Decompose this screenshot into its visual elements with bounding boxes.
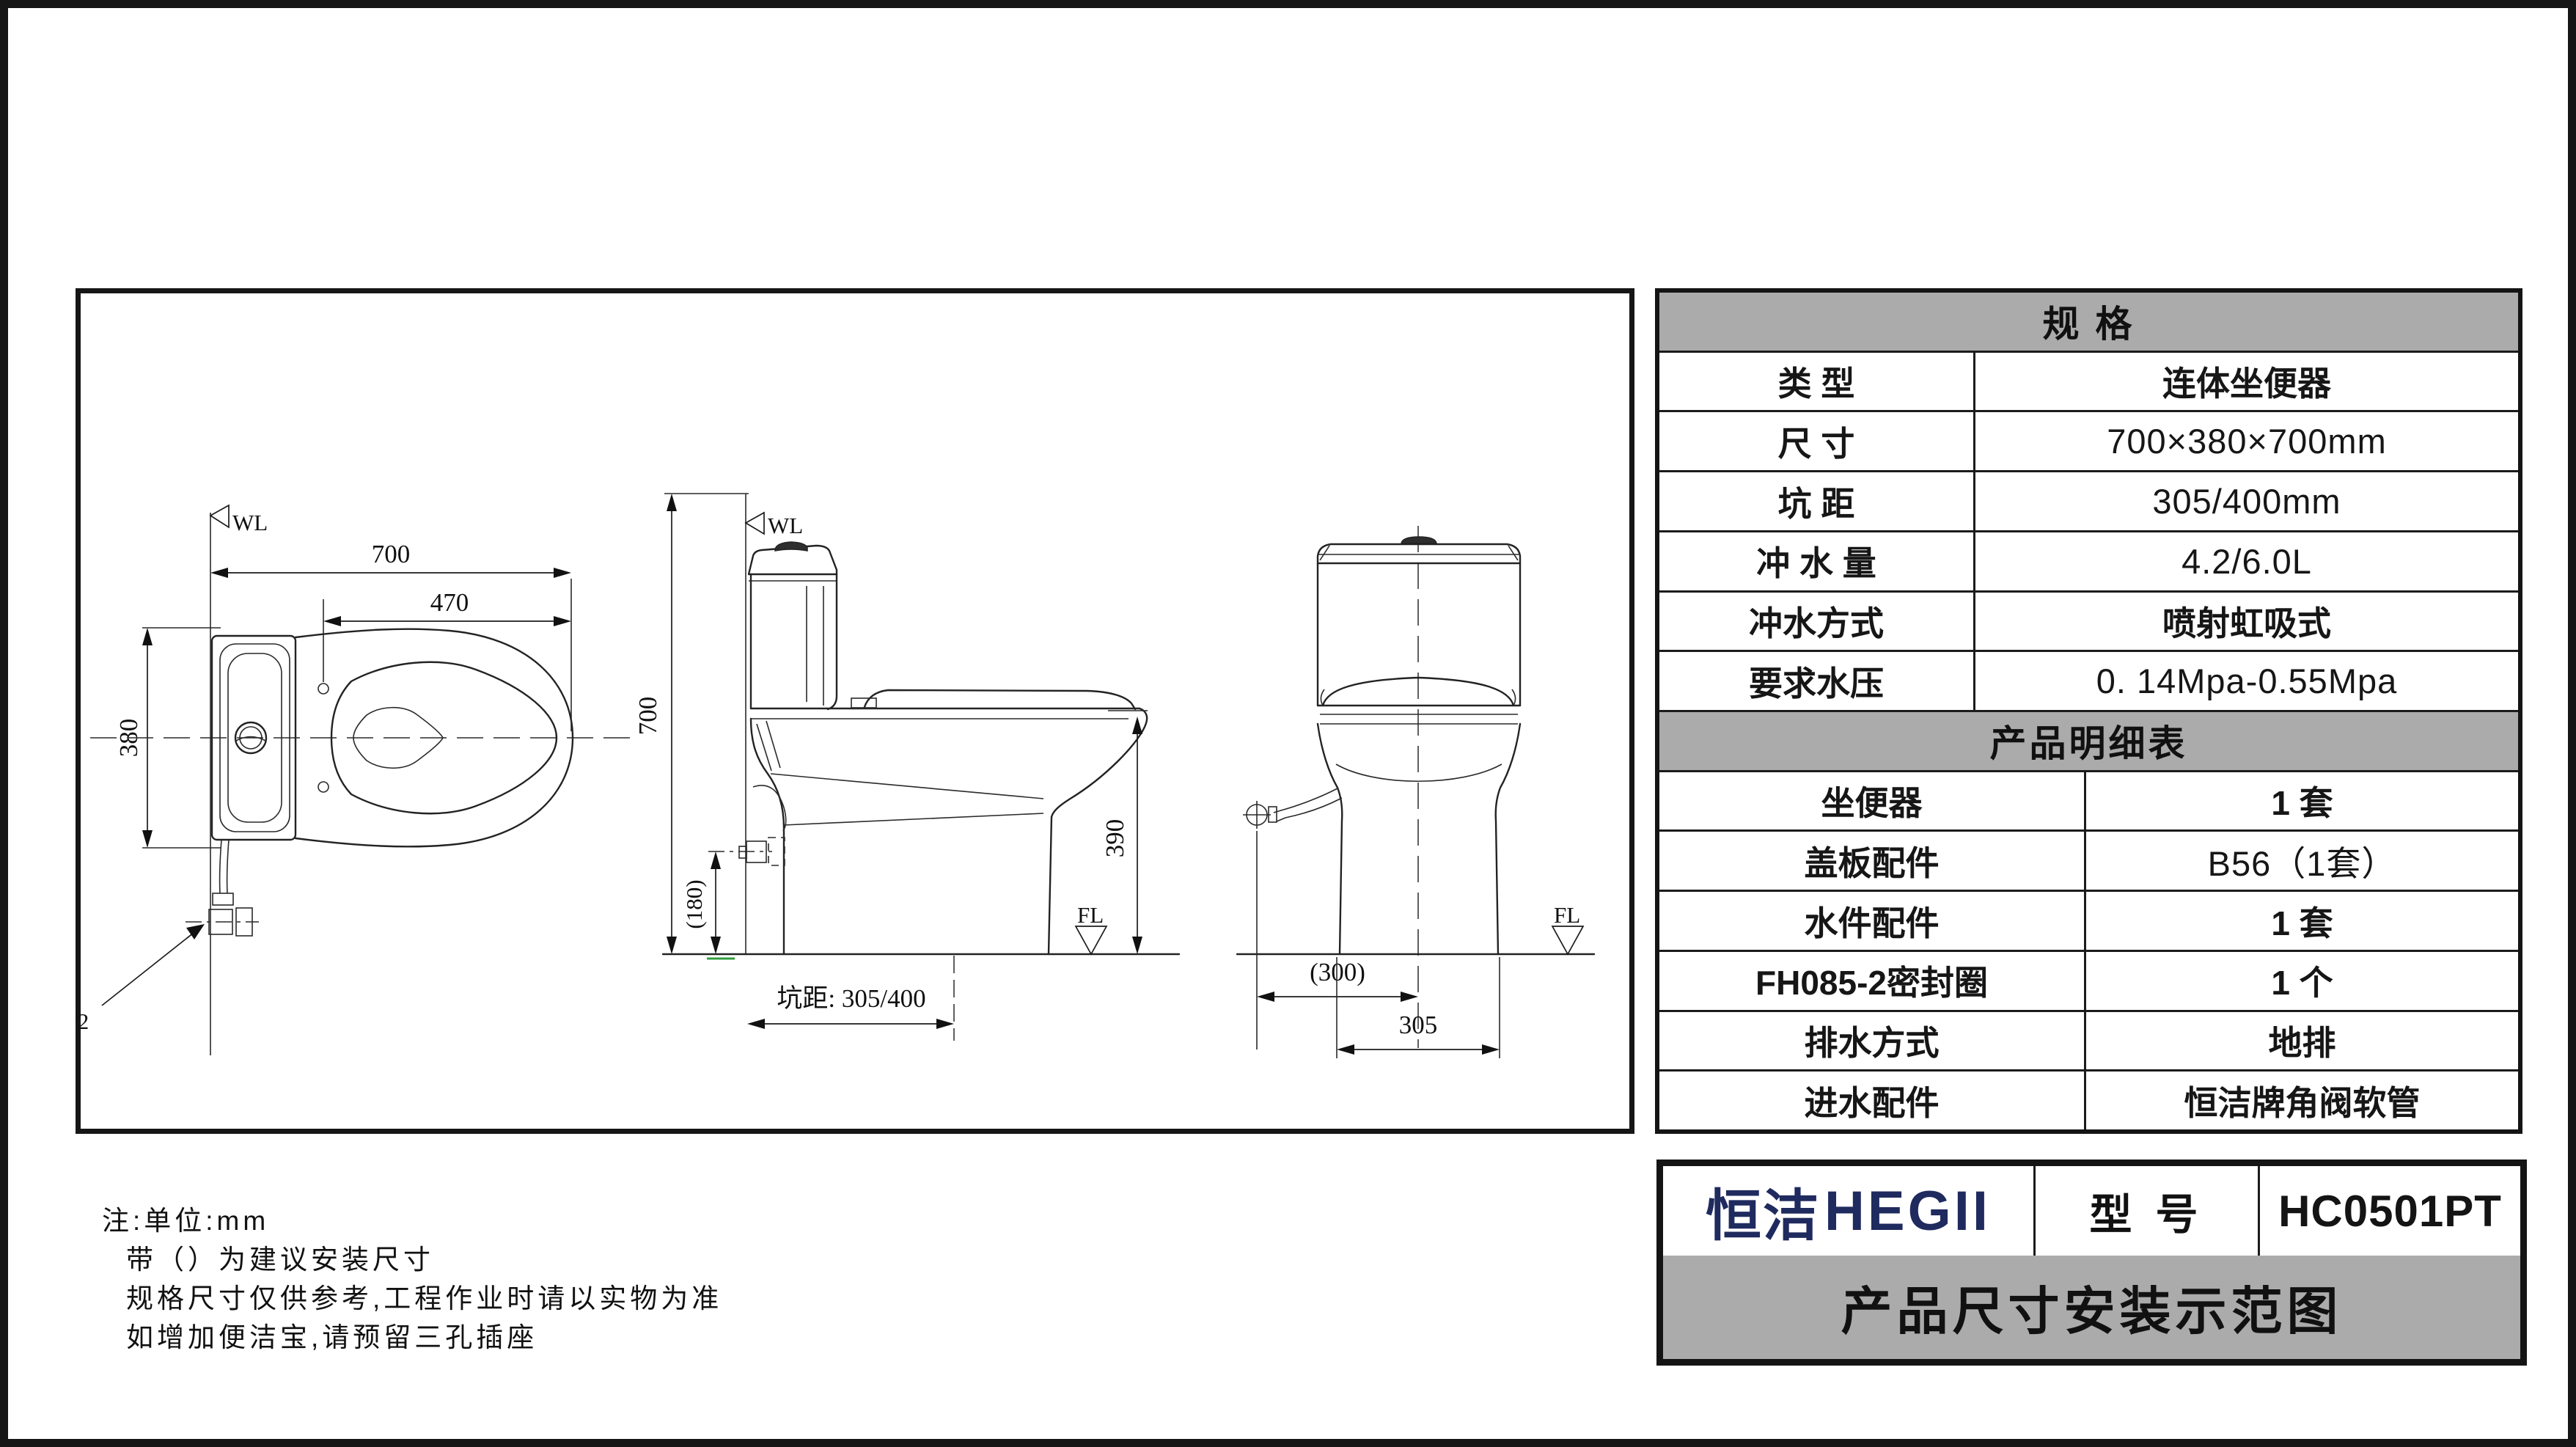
brand-logo-en: HEGII (1824, 1179, 1991, 1243)
product-table-header: 产品明细表 (1659, 710, 2518, 770)
product-label: 进水配件 (1659, 1071, 2086, 1129)
wl-label: WL (768, 513, 803, 538)
spec-sheet-page: WL 700 470 380 (0, 0, 2576, 1447)
product-value: 地排 (2086, 1012, 2518, 1070)
spec-value: 连体坐便器 (1975, 353, 2518, 411)
product-label: 排水方式 (1659, 1012, 2086, 1070)
model-label: 型 号 (2036, 1166, 2260, 1256)
brand-logo-cn: 恒洁 (1706, 1171, 1820, 1251)
spec-label: 坑 距 (1659, 472, 1975, 530)
product-value: 1 个 (2086, 952, 2518, 1010)
spec-value: 4.2/6.0L (1975, 532, 2518, 590)
product-value: 恒洁牌角阀软管 (2086, 1071, 2518, 1129)
table-row: 坑 距 305/400mm (1659, 470, 2518, 530)
product-value: 1 套 (2086, 892, 2518, 950)
fl-label: FL (1077, 902, 1104, 928)
title-block: 恒洁 HEGII 型 号 HC0501PT 产品尺寸安装示范图 (1656, 1160, 2527, 1366)
table-row: 进水配件 恒洁牌角阀软管 (1659, 1069, 2518, 1129)
note-line: 如增加便洁宝,请预留三孔插座 (126, 1319, 1129, 1357)
fl-marker-icon (1076, 926, 1107, 954)
spec-value: 0. 14Mpa-0.55Mpa (1975, 652, 2518, 710)
notes-block: 注:单位:mm 带（）为建议安装尺寸 规格尺寸仅供参考,工程作业时请以实物为准 … (102, 1202, 1129, 1358)
model-value: HC0501PT (2260, 1166, 2520, 1256)
spec-label: 冲 水 量 (1659, 532, 1975, 590)
dim-300: (300) (1310, 958, 1365, 986)
table-row: 冲 水 量 4.2/6.0L (1659, 530, 2518, 590)
table-row: 盖板配件 B56（1套） (1659, 829, 2518, 890)
spec-value: 700×380×700mm (1975, 412, 2518, 470)
sheet-caption: 产品尺寸安装示范图 (1663, 1256, 2520, 1359)
spec-label: 要求水压 (1659, 652, 1975, 710)
table-row: 尺 寸 700×380×700mm (1659, 410, 2518, 470)
specification-table: 规 格 类 型 连体坐便器 尺 寸 700×380×700mm 坑 距 305/… (1655, 288, 2522, 1134)
fl-label: FL (1554, 902, 1580, 928)
product-label: 盖板配件 (1659, 832, 2086, 890)
wl-marker-icon (746, 513, 764, 534)
table-row: 坐便器 1 套 (1659, 770, 2518, 830)
spec-label: 冲水方式 (1659, 593, 1975, 651)
dim-180: (180) (681, 879, 707, 928)
table-row: 类 型 连体坐便器 (1659, 351, 2518, 411)
spec-table-header: 规 格 (1659, 293, 2518, 351)
side-view: 700 WL (634, 494, 1179, 1041)
product-label: 坐便器 (1659, 772, 2086, 830)
dim-700-side: 700 (634, 697, 662, 736)
spec-label: 尺 寸 (1659, 412, 1975, 470)
top-view: WL 700 470 380 (76, 505, 630, 1055)
spec-value: 305/400mm (1975, 472, 2518, 530)
table-row: 要求水压 0. 14Mpa-0.55Mpa (1659, 650, 2518, 710)
table-row: 排水方式 地排 (1659, 1010, 2518, 1070)
dim-305: 305 (1399, 1011, 1438, 1039)
inlet-thread-label: R1/2 (76, 1008, 89, 1034)
note-line: 规格尺寸仅供参考,工程作业时请以实物为准 (126, 1280, 1129, 1318)
pit-distance-label: 坑距: 305/400 (777, 984, 925, 1013)
note-line: 注:单位:mm (102, 1202, 1129, 1240)
technical-drawing-svg: WL 700 470 380 (76, 288, 1634, 1134)
spec-label: 类 型 (1659, 353, 1975, 411)
wl-marker-icon (210, 505, 229, 527)
product-label: 水件配件 (1659, 892, 2086, 950)
fl-marker-icon (1552, 926, 1583, 954)
note-line: 带（）为建议安装尺寸 (126, 1241, 1129, 1279)
product-value: B56（1套） (2086, 832, 2518, 890)
dim-470: 470 (430, 588, 469, 617)
front-view: (300) 305 FL (1237, 526, 1594, 1058)
wl-label: WL (232, 510, 268, 535)
table-row: 水件配件 1 套 (1659, 890, 2518, 950)
table-row: 冲水方式 喷射虹吸式 (1659, 590, 2518, 651)
title-block-top-row: 恒洁 HEGII 型 号 HC0501PT (1663, 1166, 2520, 1256)
product-label: FH085-2密封圈 (1659, 952, 2086, 1010)
table-row: FH085-2密封圈 1 个 (1659, 950, 2518, 1010)
dim-390: 390 (1101, 819, 1129, 858)
dim-700-top: 700 (372, 540, 411, 568)
product-value: 1 套 (2086, 772, 2518, 830)
spec-value: 喷射虹吸式 (1975, 593, 2518, 651)
drawing-panel: WL 700 470 380 (76, 288, 1634, 1134)
brand-logo: 恒洁 HEGII (1663, 1166, 2036, 1256)
